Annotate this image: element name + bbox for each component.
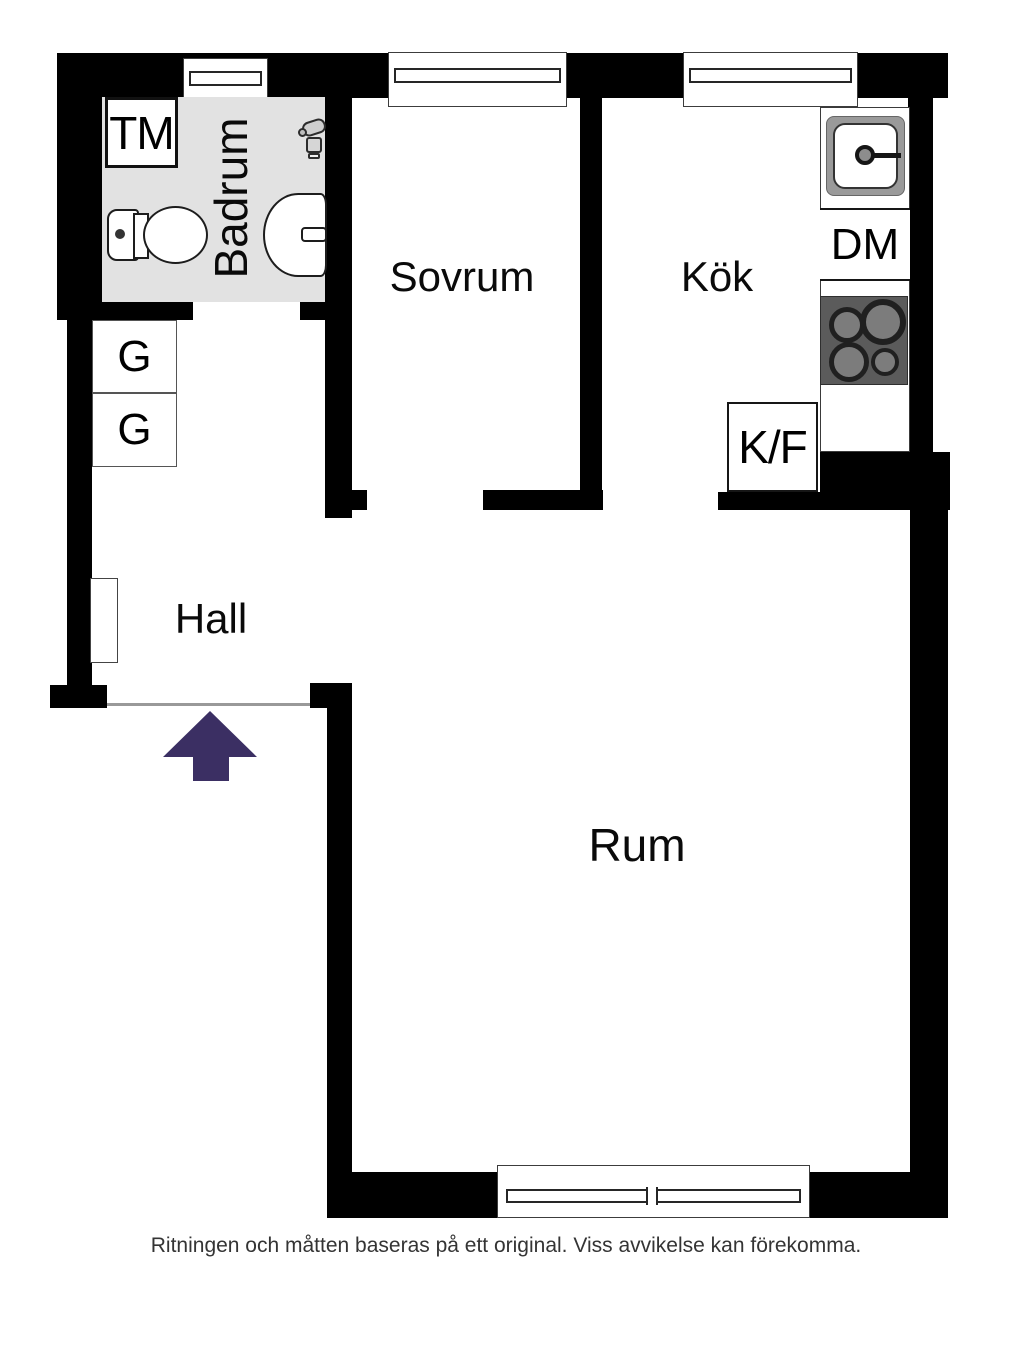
window-rum (497, 1165, 810, 1218)
toilet-bowl (143, 206, 208, 264)
window-kok (683, 52, 858, 107)
stove-burner (829, 342, 869, 382)
fridge-freezer-label: K/F (738, 420, 807, 474)
kitchen-sink-icon (826, 116, 905, 196)
bathroom-sink-drain (301, 227, 327, 242)
wall-sovrum-kok-divider (580, 98, 602, 493)
hall-door-leaf (90, 578, 118, 663)
plan-disclaimer-caption: Ritningen och måtten baseras på ett orig… (0, 1234, 1012, 1258)
closet-top-box: G (92, 320, 177, 393)
wall-hall-foot-block (50, 685, 107, 708)
wall-sovrum-bottom (483, 490, 603, 510)
window-symbol (689, 68, 852, 83)
room-label-rum: Rum (537, 818, 737, 872)
dishwasher-box: DM (820, 208, 910, 281)
closet-bottom-label: G (117, 405, 151, 455)
dishwasher-label: DM (831, 220, 899, 270)
entrance-threshold-line (107, 703, 310, 706)
window-sovrum (388, 52, 567, 107)
closet-bottom-box: G (92, 393, 177, 467)
window-symbol (394, 68, 561, 83)
wall-hall-sovrum-divider (325, 53, 352, 518)
stove-burner (871, 348, 899, 376)
faucet-base (308, 153, 320, 159)
washing-machine-label: TM (109, 106, 173, 160)
window-mullion (646, 1187, 658, 1205)
room-label-hall: Hall (131, 594, 291, 644)
room-label-badrum: Badrum (206, 88, 256, 308)
washing-machine-box: TM (105, 97, 178, 168)
faucet-body (306, 137, 322, 153)
toilet-flush-dot (115, 229, 125, 239)
stove-burner (860, 299, 906, 345)
wall-left-upper (57, 53, 103, 320)
wall-right-kitchen (908, 98, 933, 452)
kitchen-sink-drain (855, 145, 875, 165)
fridge-freezer-box: K/F (727, 402, 818, 492)
wall-hall-left (67, 318, 92, 685)
wall-rum-left (327, 683, 352, 1218)
room-label-sovrum: Sovrum (362, 252, 562, 302)
floor-plan: TM Badrum G G Hall Sovrum (0, 0, 1012, 1357)
wall-right-rum (910, 452, 948, 1218)
wall-sovrum-door-stub (352, 490, 367, 510)
closet-top-label: G (117, 332, 151, 382)
room-label-kok: Kök (637, 252, 797, 302)
window-symbol (189, 71, 262, 86)
faucet-knob (298, 128, 307, 137)
stove-burners-icon (820, 296, 908, 385)
entrance-arrow-icon (163, 711, 257, 781)
